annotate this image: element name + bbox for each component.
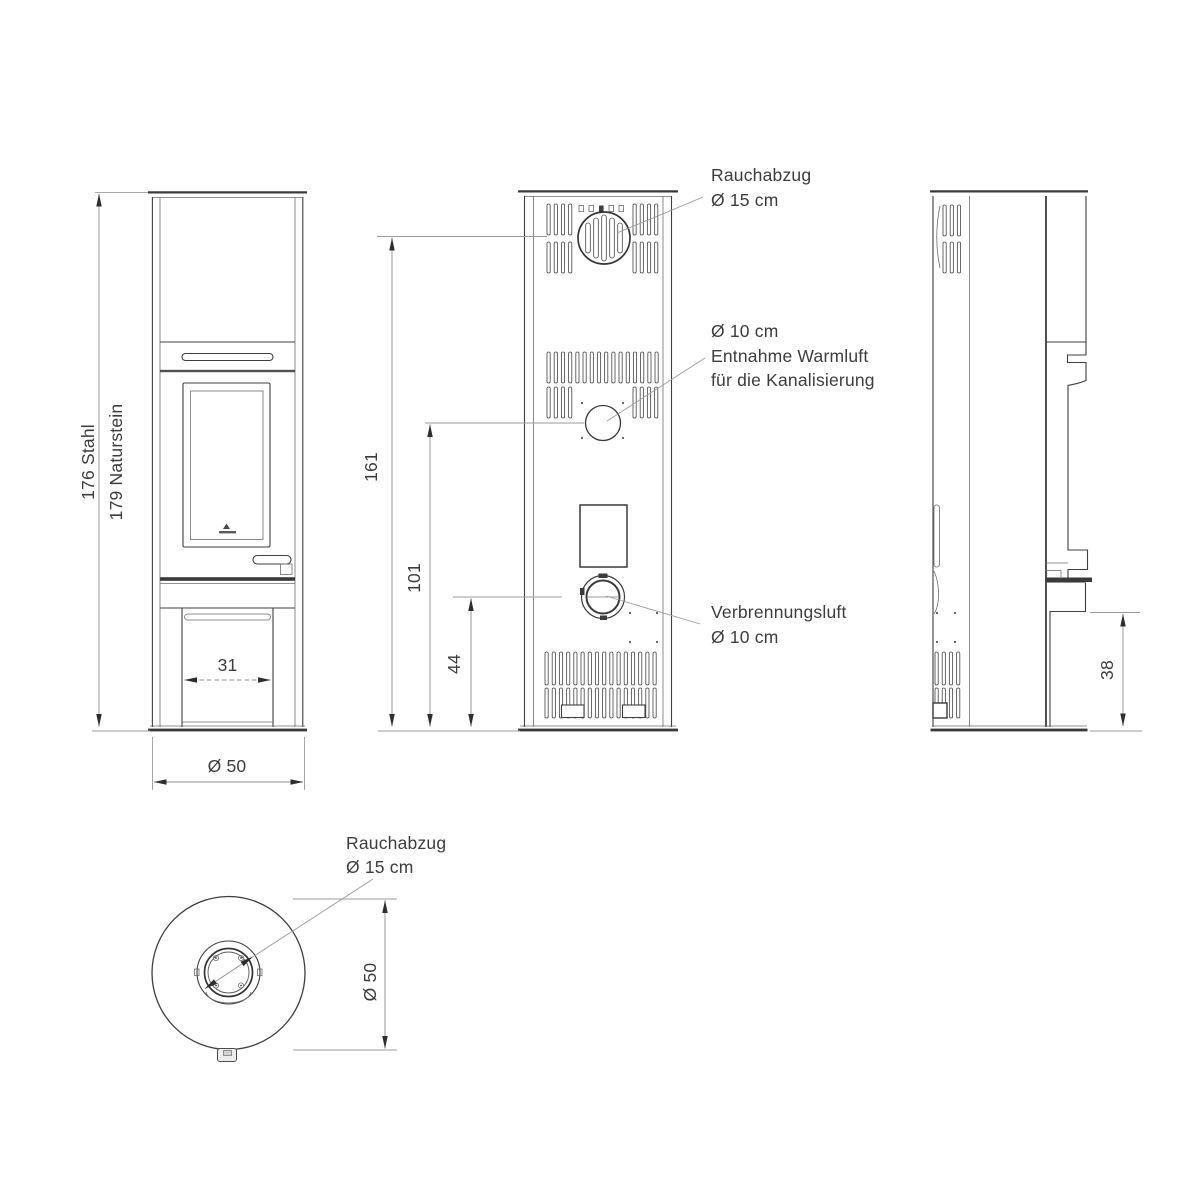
base-drawer-lip xyxy=(185,614,271,620)
top-damper-tab xyxy=(218,1049,237,1062)
warm-air-outlet xyxy=(581,402,624,441)
front-door-top-strip xyxy=(160,370,295,372)
side-bottom-plate xyxy=(931,729,1088,732)
label-combustion-1: Verbrennungsluft xyxy=(711,602,847,622)
label-top-smoke-1: Rauchabzug xyxy=(346,833,446,853)
side-front-profile xyxy=(1068,196,1088,578)
side-foot xyxy=(933,703,947,718)
technical-drawing-page: 176 Stahl 179 Naturstein 31 Ø 50 xyxy=(0,0,1200,1200)
side-top-vents xyxy=(943,205,961,273)
label-combustion-2: Ø 10 cm xyxy=(711,627,779,647)
side-smoke-arc xyxy=(937,206,940,268)
dim-body-diameter-top: Ø 50 xyxy=(360,963,380,1002)
dim-body-diameter-front: Ø 50 xyxy=(208,756,247,776)
side-plinth-profile xyxy=(1050,583,1086,728)
dim-total-height-steel: 176 Stahl xyxy=(78,424,98,500)
stove-dimension-drawing: 176 Stahl 179 Naturstein 31 Ø 50 xyxy=(0,0,1200,1200)
front-view xyxy=(148,192,307,731)
front-hearth-strip xyxy=(160,577,295,581)
side-view xyxy=(930,191,1092,731)
label-warm-air-1: Ø 10 cm xyxy=(711,321,779,341)
back-foot-right xyxy=(623,705,646,718)
door-latch xyxy=(281,564,293,575)
back-annotations: Rauchabzug Ø 15 cm Ø 10 cm Entnahme Warm… xyxy=(606,165,875,647)
back-bottom-plate xyxy=(518,729,678,732)
dim-combustion-air-height: 44 xyxy=(444,654,464,674)
dim-total-height-stone: 179 Naturstein xyxy=(106,404,126,521)
back-foot-left xyxy=(562,705,585,718)
dim-warm-air-height: 101 xyxy=(404,563,424,593)
front-door-glass-frame xyxy=(183,383,270,547)
label-warm-air-3: für die Kanalisierung xyxy=(711,370,875,390)
dim-base-recess-width: 31 xyxy=(218,655,238,675)
front-door-glass xyxy=(191,391,264,540)
side-curve-detail xyxy=(934,571,939,614)
side-middle-slot xyxy=(934,505,940,567)
back-view xyxy=(518,191,678,731)
back-dimensions: 161 101 44 xyxy=(361,237,619,732)
front-air-slot xyxy=(182,354,273,361)
side-dimensions: 38 xyxy=(1090,613,1142,732)
side-hearth-strip xyxy=(1046,578,1092,583)
back-access-panel xyxy=(580,505,627,567)
dim-smoke-outlet-height: 161 xyxy=(361,452,381,482)
top-view xyxy=(152,897,305,1062)
door-handle xyxy=(253,556,291,565)
smoke-outlet-back xyxy=(578,212,630,264)
label-back-smoke-1: Rauchabzug xyxy=(711,165,811,185)
brand-logo-icon xyxy=(219,524,236,534)
front-bottom-plate xyxy=(148,729,307,732)
label-top-smoke-2: Ø 15 cm xyxy=(346,857,414,877)
dim-base-section-height: 38 xyxy=(1097,660,1117,680)
label-back-smoke-2: Ø 15 cm xyxy=(711,190,779,210)
label-warm-air-2: Entnahme Warmluft xyxy=(711,346,868,366)
back-top-holes xyxy=(579,206,624,212)
